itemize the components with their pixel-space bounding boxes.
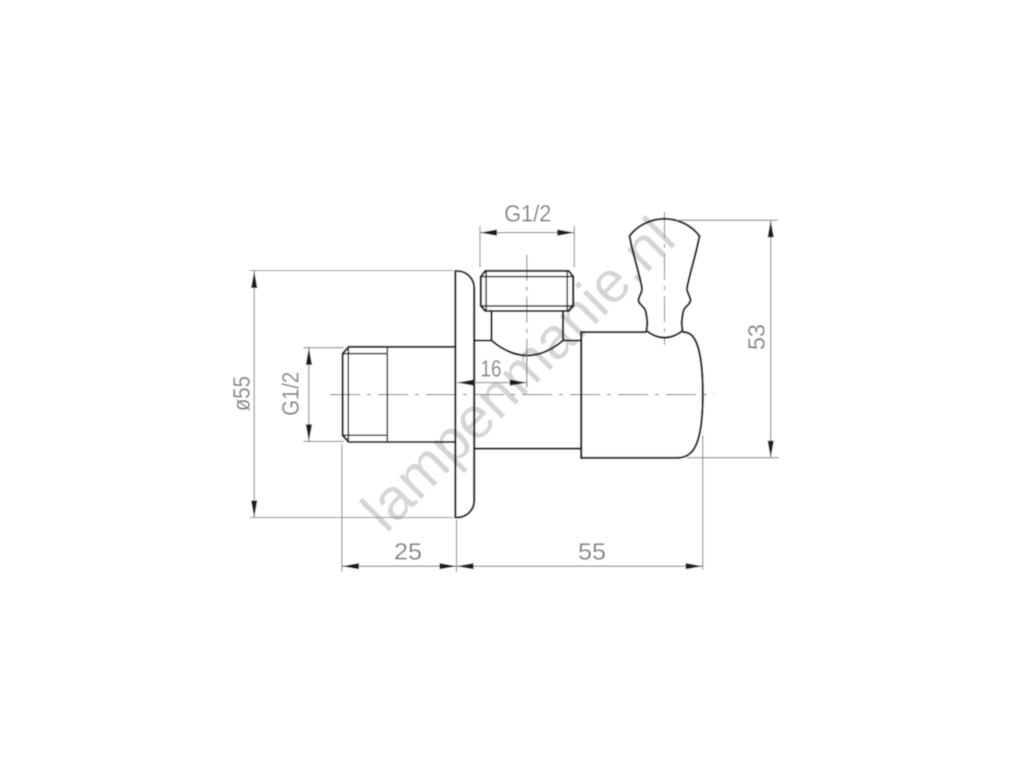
svg-text:53: 53 <box>744 324 770 350</box>
svg-text:G1/2: G1/2 <box>278 372 304 416</box>
svg-text:G1/2: G1/2 <box>504 201 551 227</box>
svg-text:25: 25 <box>394 538 422 564</box>
svg-text:16: 16 <box>481 355 502 381</box>
svg-text:55: 55 <box>578 538 606 564</box>
svg-text:ø55: ø55 <box>229 376 255 411</box>
